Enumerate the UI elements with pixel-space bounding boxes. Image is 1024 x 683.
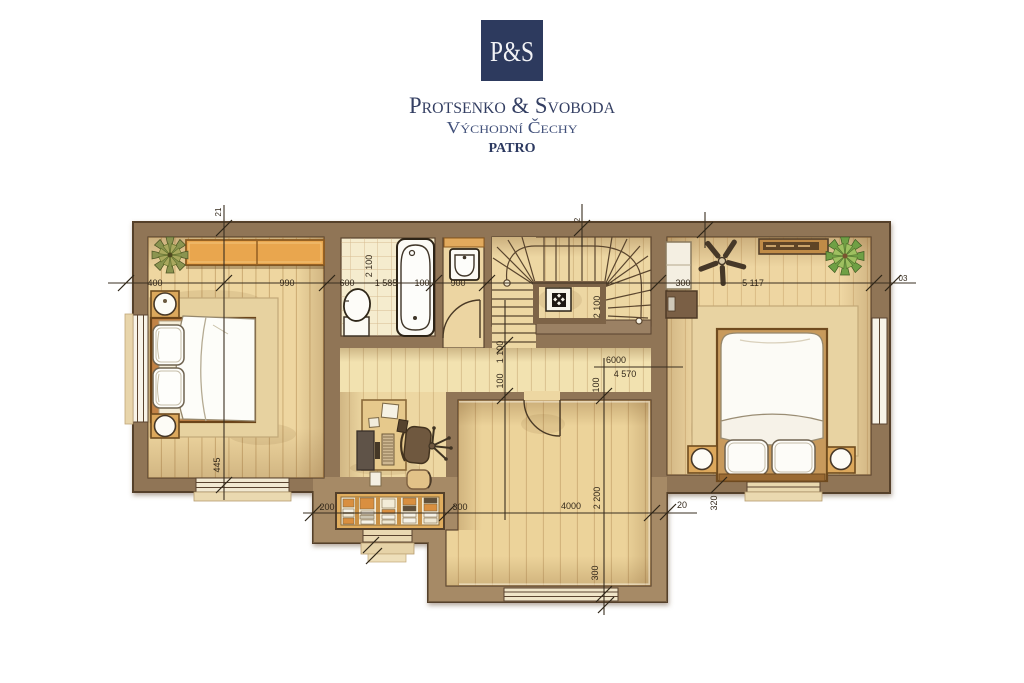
svg-text:445: 445 bbox=[212, 457, 222, 472]
svg-text:Východní Čechy: Východní Čechy bbox=[447, 118, 578, 137]
svg-text:300: 300 bbox=[452, 502, 467, 512]
svg-text:100: 100 bbox=[591, 377, 601, 392]
svg-text:990: 990 bbox=[279, 278, 294, 288]
svg-text:300: 300 bbox=[590, 565, 600, 580]
svg-text:5 117: 5 117 bbox=[742, 278, 764, 288]
svg-text:21: 21 bbox=[214, 207, 223, 216]
svg-text:2 100: 2 100 bbox=[592, 296, 602, 319]
svg-text:P&S: P&S bbox=[490, 36, 534, 68]
svg-text:2 100: 2 100 bbox=[364, 255, 374, 278]
svg-text:PATRO: PATRO bbox=[489, 141, 536, 156]
svg-text:4 570: 4 570 bbox=[614, 369, 637, 379]
svg-text:200: 200 bbox=[319, 502, 334, 512]
svg-text:Protsenko & Svoboda: Protsenko & Svoboda bbox=[409, 93, 615, 118]
svg-text:4000: 4000 bbox=[561, 501, 581, 511]
svg-text:300: 300 bbox=[675, 278, 690, 288]
svg-text:2 200: 2 200 bbox=[592, 487, 602, 510]
svg-text:1 585: 1 585 bbox=[375, 278, 398, 288]
svg-text:03: 03 bbox=[899, 274, 908, 283]
svg-text:1 100: 1 100 bbox=[495, 341, 505, 364]
svg-text:320: 320 bbox=[709, 495, 719, 510]
svg-text:100: 100 bbox=[495, 373, 505, 388]
svg-text:100: 100 bbox=[414, 278, 429, 288]
svg-text:600: 600 bbox=[339, 278, 354, 288]
svg-text:20: 20 bbox=[677, 500, 687, 510]
svg-text:2: 2 bbox=[573, 217, 582, 222]
svg-text:900: 900 bbox=[450, 278, 465, 288]
svg-text:6000: 6000 bbox=[606, 355, 626, 365]
svg-text:400: 400 bbox=[147, 278, 162, 288]
